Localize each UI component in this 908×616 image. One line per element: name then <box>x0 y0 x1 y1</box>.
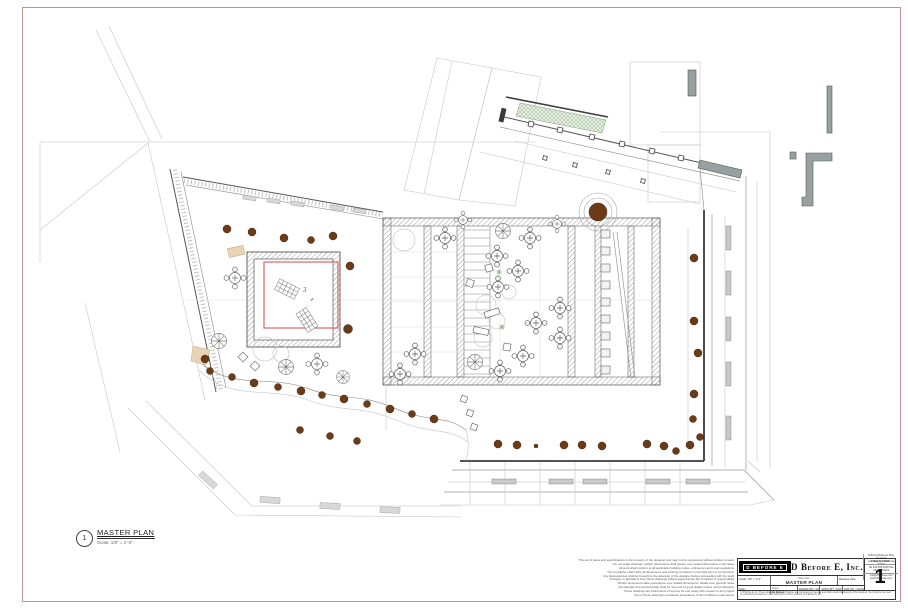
master-plan-drawing: 3 <box>0 0 908 616</box>
sheet-number-box: SHEET NUMBER 1 <box>865 559 895 590</box>
drawing-sheet: 3 <box>0 0 908 616</box>
sheet-title: MASTER PLAN <box>786 580 822 585</box>
courtyard: 3 <box>186 245 478 461</box>
title-block: D BEFORE E D Before E, Inc. 1234 Archite… <box>737 558 896 600</box>
chaise-count-label: 3 <box>302 286 307 294</box>
company-logo-text: D BEFORE E <box>743 564 787 571</box>
drawing-callout: 1 MASTER PLAN Scale: 1/8" = 1'-0" <box>76 528 155 547</box>
company-name: D Before E, Inc. <box>791 562 863 572</box>
company-logo: D BEFORE E <box>739 561 791 573</box>
context-outlines <box>40 26 770 517</box>
copyright-note: © D Before E, Inc. These drawings and sp… <box>738 590 895 599</box>
callout-number-bubble: 1 <box>76 530 93 547</box>
wall-section-details <box>790 86 832 206</box>
note-line: Use of these drawings constitutes accept… <box>425 594 735 598</box>
drawing-scale: Scale: 1/8" = 1'-0" <box>97 540 155 545</box>
release-date-field: Release date: <box>838 576 864 585</box>
scale-field: Scale: 1/8" = 1'-0" <box>738 576 771 585</box>
callout-number: 1 <box>83 535 87 542</box>
pergola-structure <box>383 218 660 430</box>
sheet-number: 1 <box>874 565 885 590</box>
drawing-title: MASTER PLAN <box>97 528 155 539</box>
sheet-title-cell: Sheet title:MASTER PLAN <box>771 576 838 585</box>
general-notes: This set of plans and specifications is … <box>425 559 735 598</box>
upper-walkway <box>480 97 742 204</box>
